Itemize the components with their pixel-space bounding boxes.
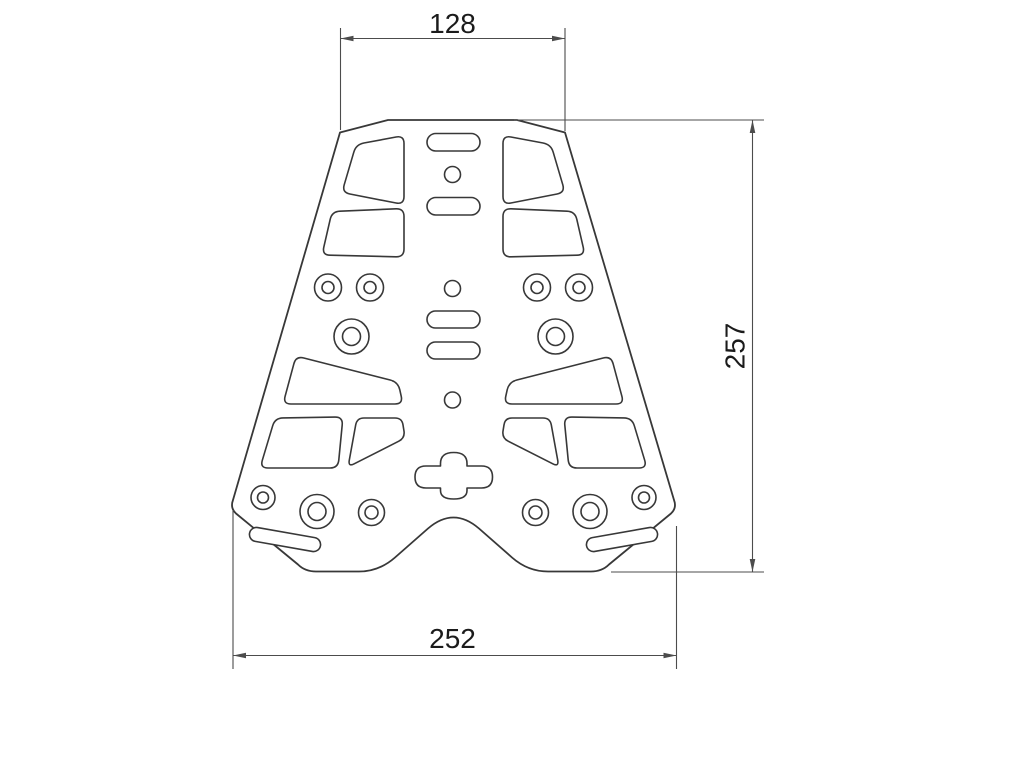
hole-inner	[639, 492, 650, 503]
dimension-arrow	[750, 120, 756, 133]
hole-inner	[547, 328, 565, 346]
dimension-top-width-label: 128	[429, 8, 476, 39]
dimension-arrow	[552, 36, 565, 42]
hole-inner	[529, 506, 542, 519]
cutout-window-upper-left-2	[323, 209, 404, 257]
hole-inner	[322, 282, 334, 294]
cutout-slot-top-2	[427, 198, 480, 216]
hole-small	[445, 392, 461, 408]
dimension-arrow	[341, 36, 354, 42]
part	[232, 120, 675, 572]
hole-small	[445, 281, 461, 297]
dimension-arrow	[233, 653, 246, 659]
hole-inner	[343, 328, 361, 346]
dimension-arrow	[664, 653, 677, 659]
dimension-arrow	[750, 559, 756, 572]
hole-inner	[581, 503, 599, 521]
hole-inner	[364, 282, 376, 294]
hole-inner	[573, 282, 585, 294]
hole-inner	[308, 503, 326, 521]
dimension-bottom-width-label: 252	[429, 623, 476, 654]
hole-inner	[258, 492, 269, 503]
hole-small	[445, 167, 461, 183]
cutout-slot-mid-1	[427, 311, 480, 328]
cutout-slot-top-1	[427, 134, 480, 152]
hole-inner	[365, 506, 378, 519]
dimension-height-label: 257	[720, 323, 751, 370]
cutout-window-lower-left-outer	[262, 417, 342, 468]
drawing-canvas: 128 257 252	[0, 0, 1024, 768]
technical-drawing: 128 257 252	[0, 0, 1024, 768]
cutout-window-upper-right-2	[503, 209, 584, 257]
cutout-slot-mid-2	[427, 342, 480, 359]
cutout-window-lower-right-outer	[565, 417, 645, 468]
hole-inner	[531, 282, 543, 294]
dimension-top-width: 128	[341, 8, 566, 131]
